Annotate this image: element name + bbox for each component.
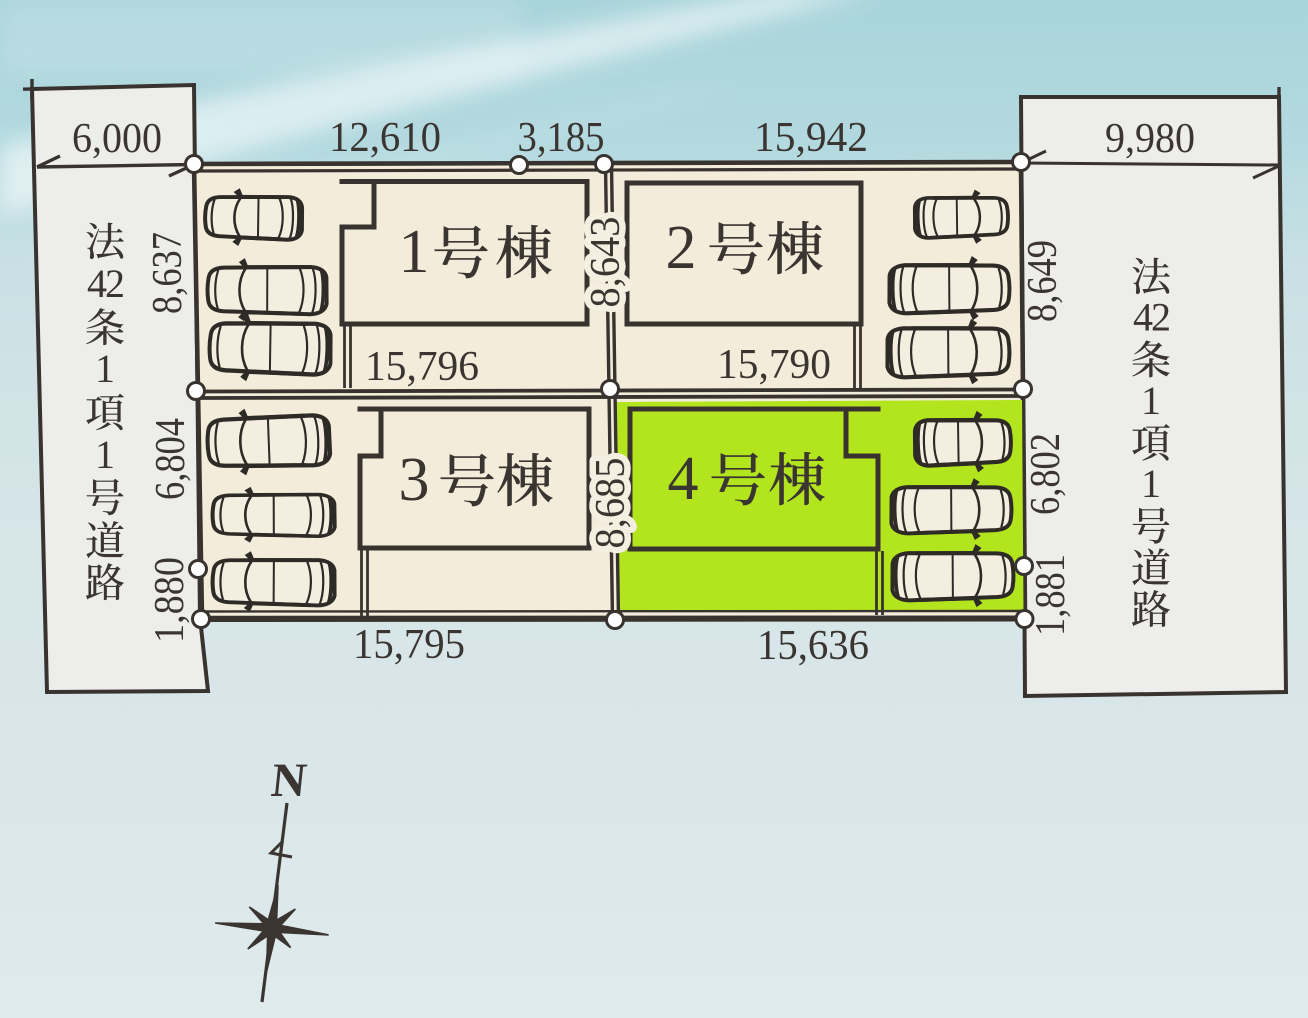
svg-text:12,610: 12,610 [329, 115, 441, 161]
svg-text:1,881: 1,881 [1028, 554, 1074, 636]
svg-text:8,643: 8,643 [583, 217, 629, 308]
svg-text:8,685: 8,685 [588, 458, 634, 549]
svg-text:1: 1 [1141, 461, 1161, 506]
svg-text:6,000: 6,000 [72, 116, 162, 162]
svg-text:4: 4 [668, 445, 699, 513]
svg-text:42: 42 [1133, 295, 1169, 340]
svg-text:1: 1 [399, 218, 430, 286]
svg-text:1: 1 [95, 432, 115, 477]
svg-text:8,637: 8,637 [145, 232, 191, 314]
svg-text:15,636: 15,636 [757, 623, 869, 669]
svg-text:1: 1 [1141, 378, 1161, 423]
svg-text:42: 42 [87, 261, 123, 306]
svg-text:6,804: 6,804 [148, 418, 194, 500]
svg-text:1,880: 1,880 [147, 557, 193, 643]
svg-text:3,185: 3,185 [518, 115, 605, 161]
svg-text:15,942: 15,942 [754, 115, 868, 161]
svg-text:15,796: 15,796 [365, 344, 479, 390]
svg-text:6,802: 6,802 [1023, 433, 1069, 515]
svg-text:1: 1 [95, 346, 115, 391]
svg-text:8,649: 8,649 [1020, 240, 1066, 322]
svg-text:2: 2 [666, 214, 697, 282]
svg-text:15,795: 15,795 [353, 622, 465, 668]
svg-text:N: N [269, 754, 309, 807]
svg-text:15,790: 15,790 [717, 342, 831, 388]
svg-text:3: 3 [399, 446, 430, 514]
svg-text:9,980: 9,980 [1105, 116, 1195, 162]
